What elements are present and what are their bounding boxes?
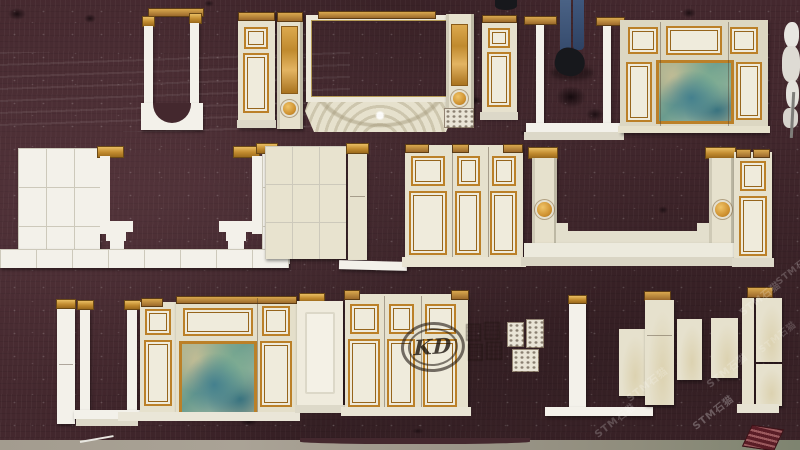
assembly-base [402, 257, 526, 267]
gold-trim-side-right [736, 62, 762, 120]
jamb-right [190, 23, 199, 106]
gold-panel-right [482, 15, 517, 118]
gold-trim-wide-top [183, 308, 253, 336]
hearth-band [0, 249, 289, 268]
plaster-lobe [782, 46, 800, 82]
molded-inset [305, 312, 335, 394]
tan-marble-inlay [281, 26, 298, 94]
gold-trim-tall [260, 341, 292, 407]
brand-stamp-watermark [466, 322, 504, 366]
assembly-base [618, 126, 770, 133]
wood-cap [344, 290, 360, 300]
gold-medallion-left [537, 202, 552, 217]
open-mirror-frame [306, 15, 453, 102]
sample-block [512, 349, 539, 372]
worker-legs [555, 0, 589, 82]
jeans-leg-right [573, 0, 584, 50]
panel-seam [660, 22, 661, 131]
onyx-wall-assembly-top [620, 20, 768, 133]
panel-base [295, 405, 345, 413]
gold-trim-small [457, 156, 480, 186]
wood-cap [736, 149, 751, 158]
panel-seam [488, 147, 489, 264]
sample-block [507, 322, 524, 347]
panel-seam [452, 147, 453, 264]
rosette-medallion [453, 92, 466, 105]
mantel-base-lower [521, 257, 749, 266]
stone-tile [677, 319, 702, 380]
panel-seam [384, 296, 385, 410]
pilaster-left [277, 12, 303, 129]
gold-trim-top-right [730, 27, 758, 54]
corbel-ledge-right [219, 221, 262, 232]
gold-trim-tall [490, 191, 517, 255]
wainscot-assembly-middle [405, 145, 523, 266]
stamp-glyph [484, 322, 500, 340]
jamb-left [144, 26, 153, 106]
wood-cap-left [524, 16, 557, 25]
gold-capital [346, 143, 369, 154]
green-onyx-insert [656, 60, 734, 124]
pilaster-right [446, 14, 474, 120]
doorway-frame-bottom [74, 300, 144, 426]
gold-capital-left [77, 300, 94, 310]
door-jamb-right [127, 310, 137, 410]
gold-panel-beside-mantel [734, 152, 772, 262]
panel-lower [756, 364, 782, 406]
tile-field-left [18, 148, 100, 264]
carved-corbel-foot [444, 108, 474, 128]
panel-seam [647, 335, 672, 336]
gold-capital [568, 295, 587, 304]
gold-trim-top-left [628, 27, 658, 54]
panel-base [237, 120, 276, 128]
gold-trim-tall [487, 52, 511, 107]
wood-batten [176, 296, 297, 304]
corbel-step [106, 232, 126, 241]
baseboard-strip [339, 260, 407, 271]
warehouse-floor-photo: KD STM石猫 STM石猫 STM石猫 STM石猫 STM石猫 STM石猫 S… [0, 0, 800, 450]
gold-trim-small [488, 28, 510, 48]
gold-trim-tall [409, 191, 447, 255]
gold-trim-tall [455, 191, 481, 255]
gold-medallion-right [715, 202, 730, 217]
panel-base [737, 404, 779, 413]
wood-cap [451, 290, 469, 300]
baseboard-long [118, 412, 300, 421]
strip-seam [59, 364, 73, 365]
rosette-medallion [283, 102, 296, 115]
wood-cap [141, 298, 163, 307]
kd-logo-text: KD [401, 332, 466, 362]
wood-batten-top [318, 11, 436, 19]
kd-logo-watermark: KD [399, 320, 466, 376]
door-jamb-left [80, 310, 90, 410]
corbel-step [226, 232, 246, 241]
fireplace-tile-wall [0, 143, 292, 270]
gold-trim-small [740, 161, 766, 191]
corbel-ledge-left [100, 221, 133, 232]
gold-trim-small [411, 156, 445, 186]
gold-trim-small [145, 309, 171, 335]
wood-cap [482, 15, 517, 23]
inner-shelf [556, 231, 709, 243]
narrow-strip-piece [569, 304, 586, 409]
wood-cap [753, 149, 770, 158]
assembly-base [341, 407, 471, 416]
mantel-surround [521, 147, 751, 267]
wood-cap [238, 12, 275, 21]
worker-shoe-second [495, 0, 517, 10]
cream-tile-panel [265, 146, 346, 259]
gold-trim-tall [739, 196, 767, 256]
gold-capital [56, 299, 76, 309]
onyx-wall-assembly-bottom [176, 296, 297, 418]
gold-trim-tall [243, 53, 269, 113]
green-onyx-insert [179, 341, 257, 415]
gold-trim-small [244, 27, 268, 49]
vertical-strip-panel [348, 154, 367, 260]
stamp-glyph [468, 344, 483, 361]
carpet-edge-bump [300, 438, 530, 444]
stamp-glyph [466, 324, 481, 341]
sample-block [526, 319, 544, 348]
stone-sample-blocks [505, 317, 547, 375]
strip-seam [350, 196, 365, 197]
stamp-glyph [486, 342, 502, 360]
tan-marble-inlay [451, 24, 468, 86]
gold-trim-side-left [626, 62, 652, 122]
carved-apron-panel [305, 102, 455, 132]
wood-cap [277, 12, 303, 22]
mantel-base-bar [524, 243, 746, 257]
gold-trim-small [492, 156, 516, 186]
gold-panel-left [238, 12, 275, 128]
gold-panel-bottom-1 [140, 302, 176, 414]
gold-capital-right [124, 300, 141, 310]
arch-niche-frame-piece [140, 8, 204, 132]
door-stile-right [603, 26, 611, 123]
door-stile-left [536, 25, 544, 123]
door-base-slab-lower [524, 132, 624, 140]
gold-trim-tall [144, 340, 172, 406]
door-base-slab [526, 123, 622, 132]
wood-cap [452, 144, 469, 153]
panel-seam [728, 22, 729, 131]
gold-trim-small [262, 306, 290, 336]
white-molded-panel [297, 301, 343, 407]
gold-trim-top-center [666, 26, 722, 55]
wood-cap [503, 144, 523, 153]
panel-base [732, 258, 774, 267]
gold-trim-small [350, 304, 379, 334]
panel-base [480, 112, 518, 120]
gold-trim-tall [348, 339, 380, 407]
panel-seam [257, 298, 258, 416]
plaster-lobe [784, 22, 799, 48]
wood-cap [405, 144, 429, 153]
narrow-strip-piece [57, 309, 75, 424]
